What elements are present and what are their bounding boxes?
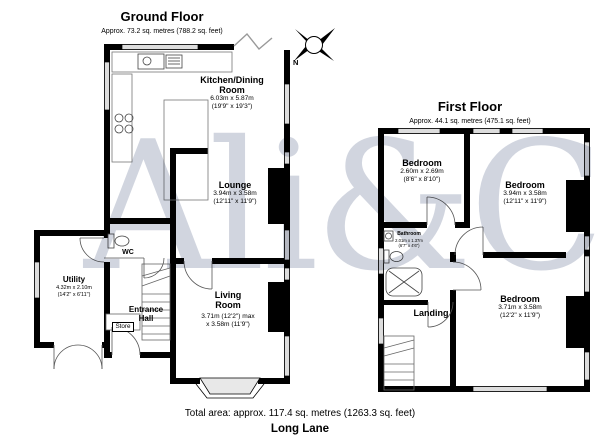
wc-toilet-icon	[108, 234, 129, 248]
zigzag-break-line	[234, 34, 272, 49]
ground-floor-title: Ground Floor	[120, 9, 203, 24]
room-label-kitchen: Kitchen/Dining Room 6.03m x 5.87m (19'9"…	[187, 75, 277, 112]
sink-icon	[138, 54, 182, 69]
room-dims-metric: 3.94m x 3.58m	[190, 190, 280, 198]
floorplan-page: Ground Floor Approx. 73.2 sq. metres (78…	[0, 0, 600, 436]
room-name: Utility	[38, 276, 110, 285]
room-label-utility: Utility 4.32m x 2.10m (14'2" x 6'11")	[38, 276, 110, 298]
room-name: Living Room	[205, 290, 251, 310]
room-dims-imperial: (6'7" x 4'6")	[387, 243, 431, 248]
room-name: Bedroom	[386, 158, 458, 168]
room-label-bedroom-2: Bedroom 3.94m x 3.58m (12'11" x 11'9")	[483, 180, 567, 207]
room-label-bedroom-1: Bedroom 2.60m x 2.69m (8'6" x 8'10")	[386, 158, 458, 185]
room-name: Bedroom	[483, 180, 567, 190]
room-dims-imperial: (12'11" x 11'9")	[483, 198, 567, 206]
room-label-lounge: Lounge 3.94m x 3.58m (12'11" x 11'9")	[190, 180, 280, 207]
room-dims-imperial: (12'2" x 11'9")	[478, 312, 562, 320]
room-label-wc: WC	[113, 249, 143, 257]
first-stairs-icon	[384, 336, 414, 390]
room-dims-metric: 4.32m x 2.10m	[38, 285, 110, 292]
room-label-landing: Landing	[404, 308, 458, 318]
first-floor-header: First Floor Approx. 44.1 sq. metres (475…	[370, 98, 570, 125]
room-name: Landing	[404, 308, 458, 318]
bay-window	[196, 378, 264, 398]
floorplan-drawing	[0, 0, 600, 436]
room-name: Lounge	[190, 180, 280, 190]
room-dims-metric: 2.60m x 2.69m	[386, 168, 458, 176]
room-dims-imperial: (19'9" x 19'3")	[187, 103, 277, 111]
room-name: Entrance Hall	[122, 306, 170, 324]
address-text: Long Lane	[0, 423, 600, 435]
footer: Total area: approx. 117.4 sq. metres (12…	[0, 403, 600, 435]
ground-floor-subtitle: Approx. 73.2 sq. metres (788.2 sq. feet)	[62, 28, 262, 35]
room-label-living-room: Living Room 3.71m (12'2") max x 3.58m (1…	[183, 290, 273, 330]
ground-stairs-icon	[142, 264, 170, 340]
bath-icon	[386, 268, 422, 296]
compass-north-label: N	[293, 58, 298, 67]
room-dims-metric: 6.03m x 5.87m	[187, 95, 277, 103]
first-floor-title: First Floor	[438, 99, 502, 114]
room-dims-imperial: (8'6" x 8'10")	[386, 176, 458, 184]
room-name: Kitchen/Dining Room	[187, 75, 277, 95]
room-dims-imperial: x 3.58m (11'9")	[183, 321, 273, 329]
room-label-bathroom: Bathroom 2.01m x 1.37m (6'7" x 4'6")	[387, 232, 431, 248]
first-floor-subtitle: Approx. 44.1 sq. metres (475.1 sq. feet)	[370, 118, 570, 125]
room-dims-imperial: (14'2" x 6'11")	[38, 292, 110, 299]
bathroom-toilet-icon	[384, 250, 403, 263]
ground-floor-header: Ground Floor Approx. 73.2 sq. metres (78…	[62, 8, 262, 35]
room-name: Bedroom	[478, 294, 562, 304]
room-dims-imperial: (12'11" x 11'9")	[190, 198, 280, 206]
room-dims-metric: 3.71m (12'2") max	[183, 313, 273, 321]
room-name: WC	[113, 249, 143, 257]
compass-icon	[294, 28, 335, 61]
room-dims-metric: 3.94m x 3.58m	[483, 190, 567, 198]
hob-icon	[115, 114, 133, 133]
room-dims-metric: 3.71m x 3.58m	[478, 304, 562, 312]
room-label-entrance-hall: Entrance Hall	[122, 306, 170, 324]
room-label-bedroom-3: Bedroom 3.71m x 3.58m (12'2" x 11'9")	[478, 294, 562, 321]
total-area-text: Total area: approx. 117.4 sq. metres (12…	[185, 408, 415, 419]
